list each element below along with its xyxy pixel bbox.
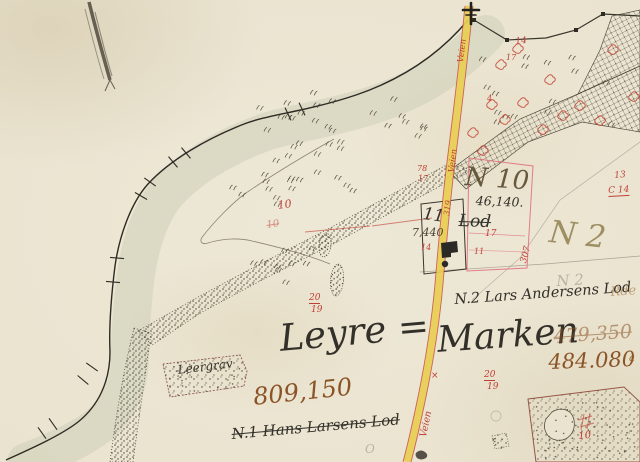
boundary-post xyxy=(574,28,578,32)
historical-cadastral-map: Leyre = Marken 809,150 479,350 484.080 N… xyxy=(0,0,640,462)
map-annotation: N 2 xyxy=(556,273,584,289)
map-annotation: 19 xyxy=(311,306,322,315)
bog-oval-2 xyxy=(329,263,345,296)
map-annotation: 10 xyxy=(277,198,292,211)
parcel10-number: N 10 xyxy=(464,164,530,194)
red-parcel-divider xyxy=(469,233,525,236)
map-annotation: 13 xyxy=(614,171,626,181)
map-annotation: 4 xyxy=(487,95,492,103)
map-annotation: Rde xyxy=(610,284,637,299)
map-annotation: 17 xyxy=(418,175,428,183)
map-annotation: 11 xyxy=(474,248,484,256)
map-annotation: C 14 xyxy=(608,186,630,197)
ink-blob xyxy=(416,451,428,460)
map-annotation: 14 xyxy=(421,244,431,252)
building-footprint xyxy=(441,241,458,258)
map-annotation: 14 xyxy=(515,37,527,47)
house-area: 7,440 xyxy=(412,227,444,238)
pencil-smudge xyxy=(85,2,115,91)
area-new-value: 484.080 xyxy=(548,349,636,373)
map-annotation: 78 xyxy=(417,165,427,173)
map-annotation: × xyxy=(431,372,439,381)
map-annotation: a xyxy=(629,354,635,364)
parcel2-number: N 2 xyxy=(548,217,608,254)
milestone-dot xyxy=(442,261,448,267)
map-annotation: 20 xyxy=(484,371,495,381)
boundary-post xyxy=(601,12,605,16)
boundary-post xyxy=(472,18,476,22)
map-annotation: 17 xyxy=(485,230,496,239)
map-annotation: 10 xyxy=(266,219,280,231)
boundary-post xyxy=(505,38,509,42)
pencil-circle xyxy=(491,411,501,421)
map-annotation: 19 xyxy=(487,383,498,392)
map-annotation: O xyxy=(365,443,375,455)
map-annotation: 20 xyxy=(309,294,320,304)
map-annotation: 10 xyxy=(578,431,592,442)
area-old-value: 479,350 xyxy=(553,323,633,347)
map-annotation: 17 xyxy=(506,54,516,62)
parcel10-area: 46,140. xyxy=(476,195,524,209)
